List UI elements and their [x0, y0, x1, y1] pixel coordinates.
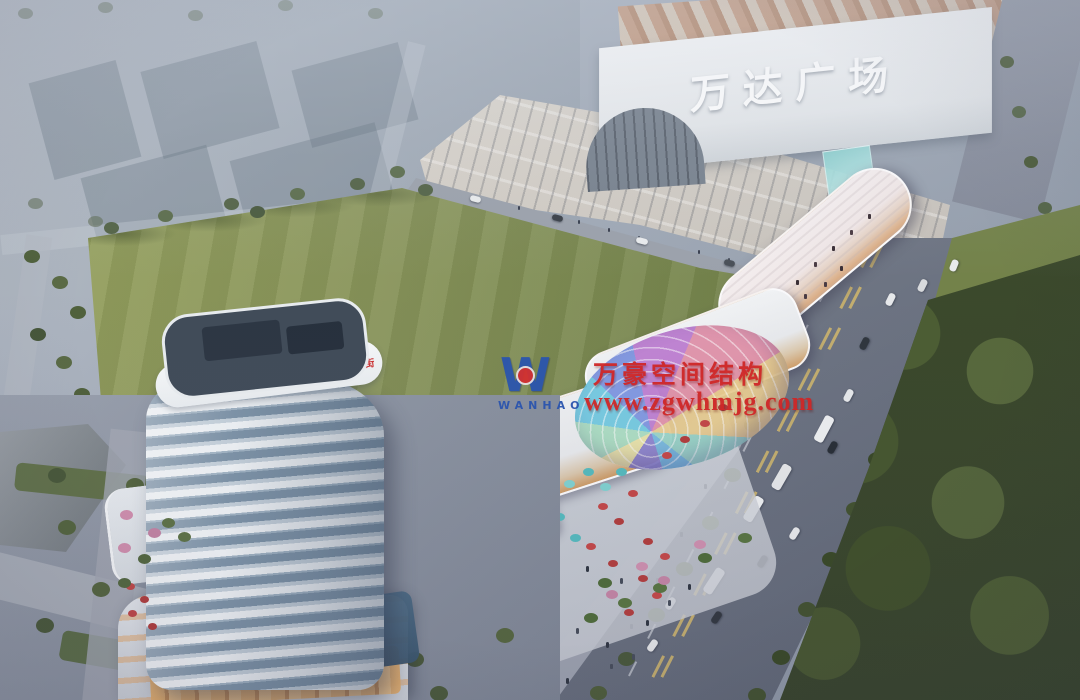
podium-parasols-red — [126, 583, 135, 590]
watermark-brand-text: 万豪空间结构 — [593, 355, 767, 391]
haze-block — [29, 60, 142, 180]
watermark-logo-badge — [516, 366, 535, 385]
watermark-logo-subtext: WANHAO — [498, 399, 584, 412]
watermark-url: www.zgwhmjg.com — [584, 387, 814, 417]
top-right-street-trees — [1000, 56, 1014, 68]
podium-flowering-trees — [120, 510, 133, 520]
plaza-trees — [48, 468, 66, 483]
tower-body — [146, 380, 384, 690]
haze-block — [140, 41, 279, 159]
left-road-trees — [24, 250, 40, 263]
field-edge-trees — [104, 222, 119, 234]
podium-planting — [162, 518, 175, 528]
parasols-red — [598, 503, 608, 510]
aerial-rendering: 万达广场 — [0, 0, 1080, 700]
haze-trees — [28, 198, 43, 209]
terrace-flowering-trees — [636, 562, 648, 571]
mall-pedestrians — [518, 206, 520, 210]
roof-penthouse — [286, 321, 345, 355]
roof-penthouse — [201, 319, 282, 361]
terrace-planting — [598, 578, 612, 588]
